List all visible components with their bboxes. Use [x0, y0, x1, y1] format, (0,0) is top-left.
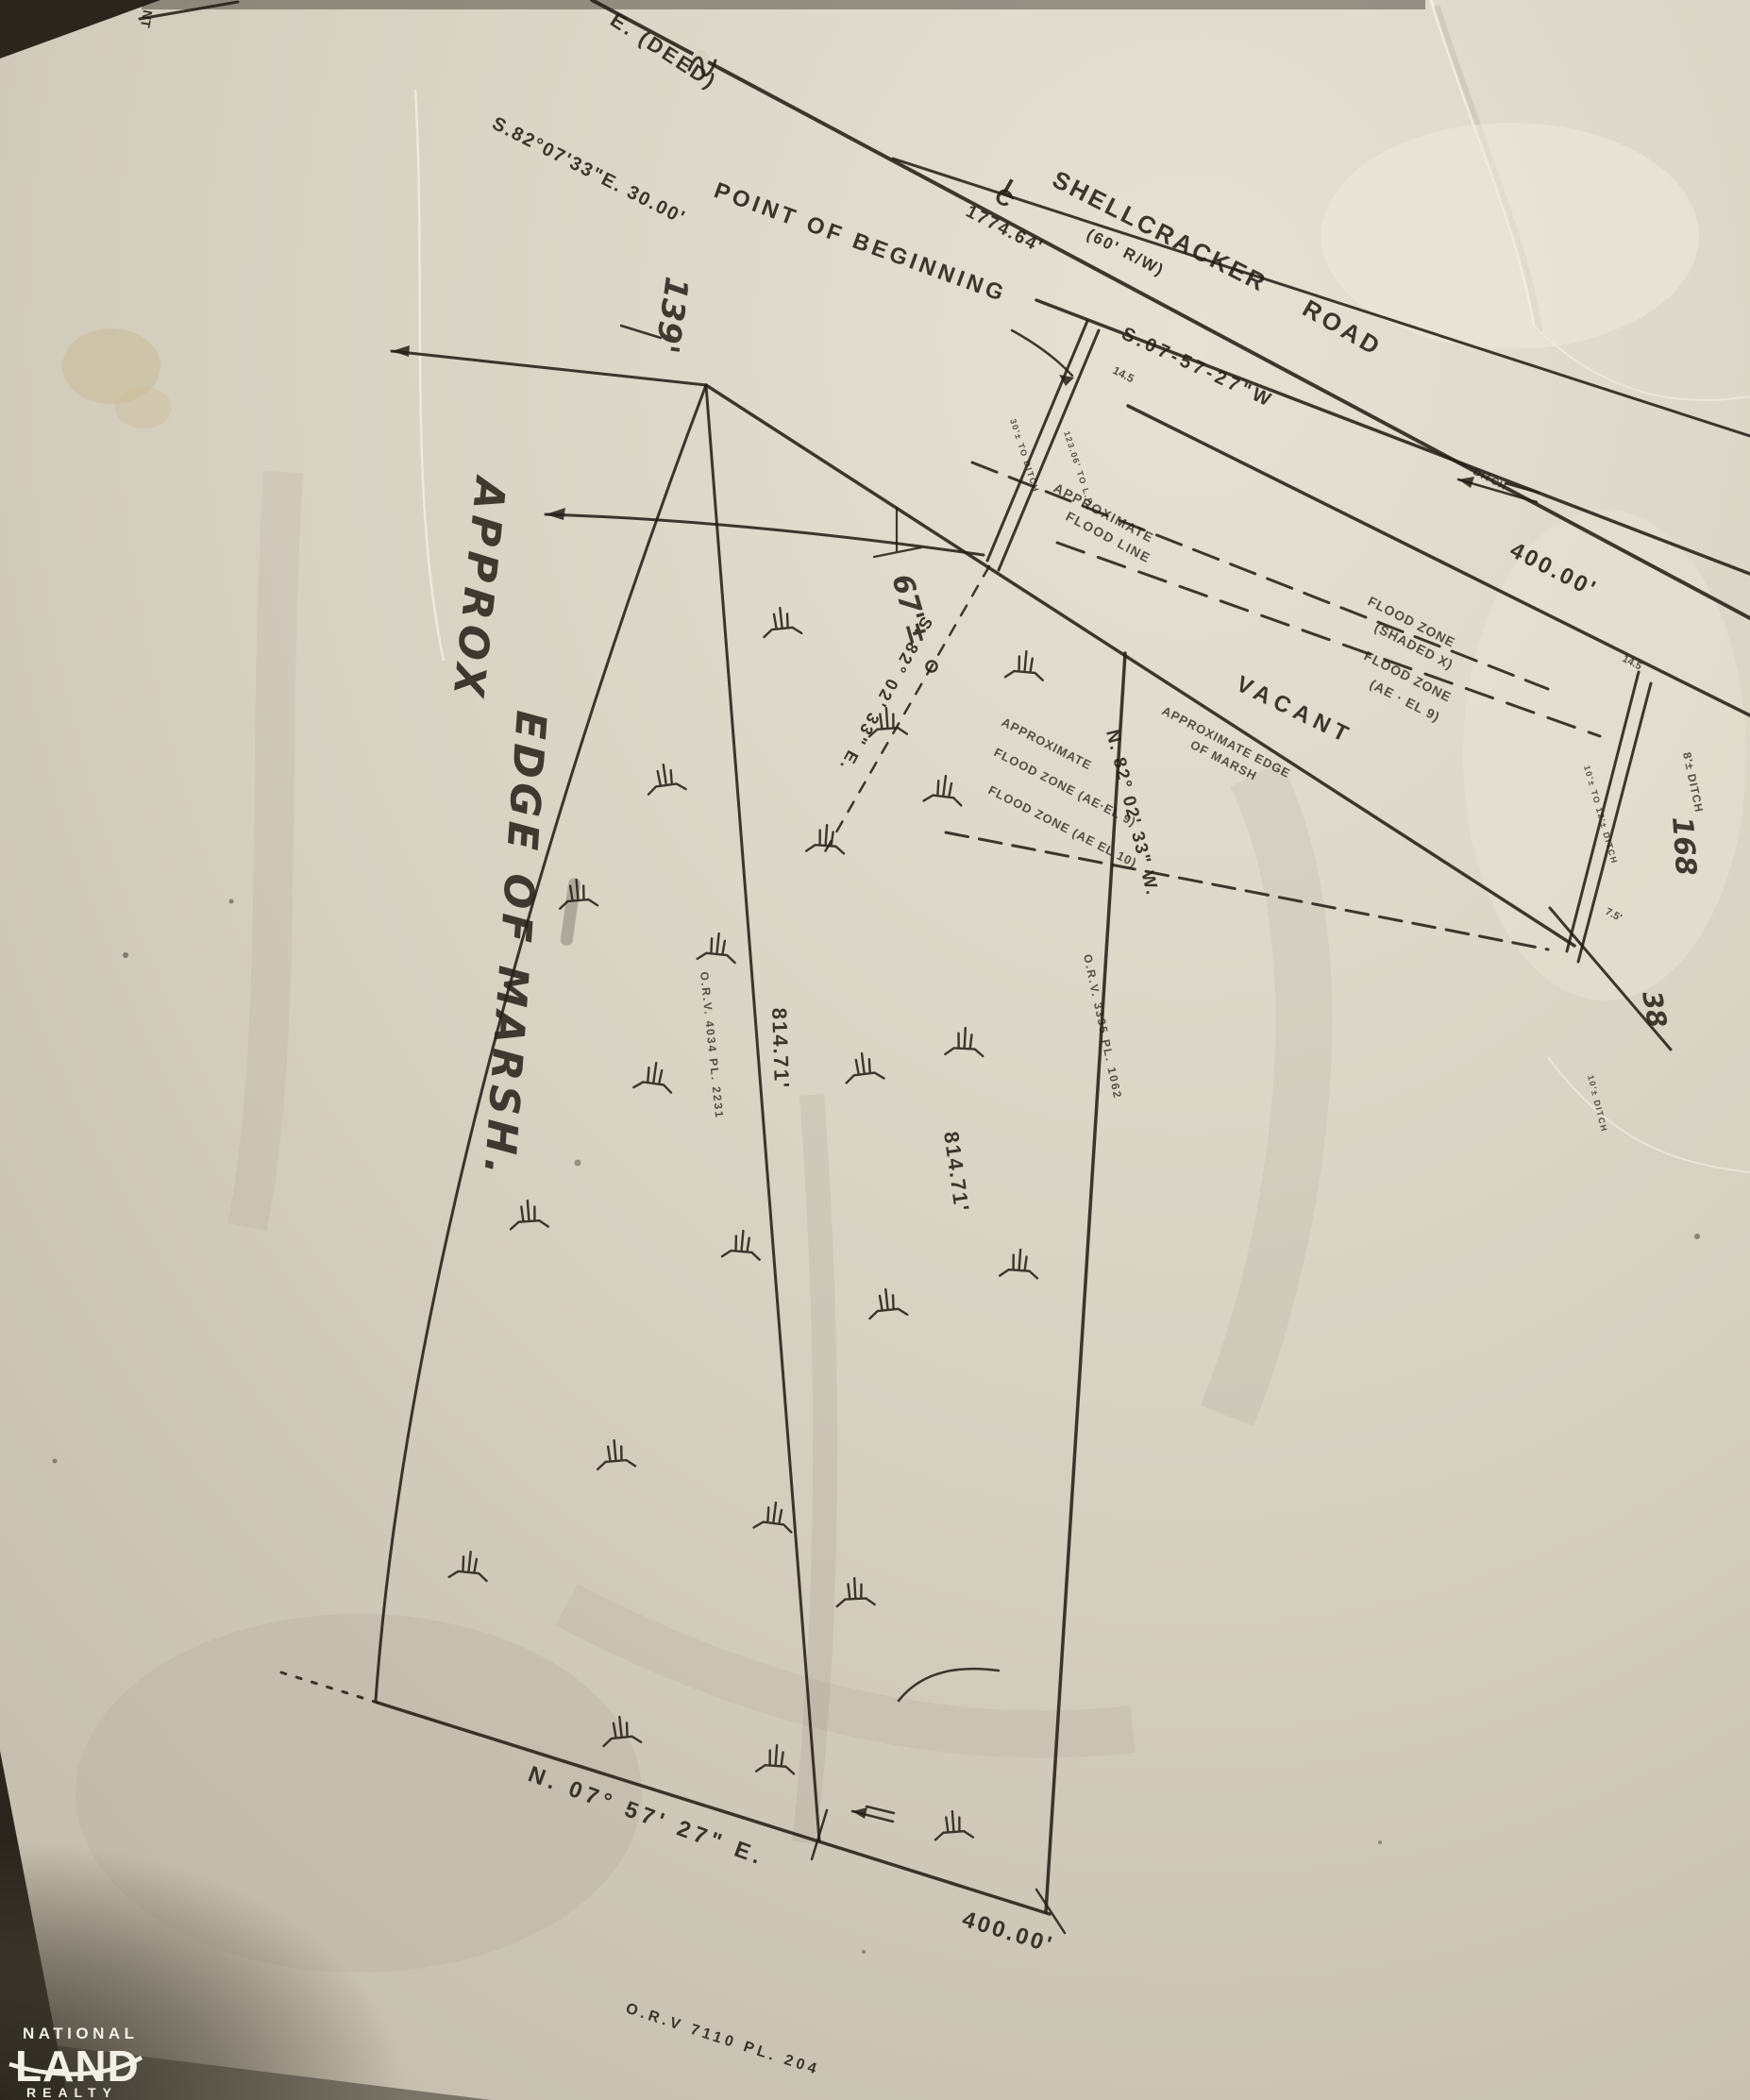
- logo-line-realty: REALTY: [26, 2085, 118, 2100]
- survey-plat-drawing: NT E. (DEED) S.82°07'33"E. 30.00' C L SH…: [0, 0, 1750, 2100]
- hand-dim-168: 168: [1665, 815, 1702, 877]
- hand-dim-38: 38: [1636, 988, 1673, 1030]
- logo-line-national: NATIONAL: [23, 2024, 139, 2042]
- scanned-survey-photo: NT E. (DEED) S.82°07'33"E. 30.00' C L SH…: [0, 0, 1750, 2100]
- west-distance: 814.71': [767, 1007, 794, 1089]
- national-land-realty-logo: NATIONAL LAND REALTY: [9, 2024, 142, 2100]
- cut-text-fragment: NT: [138, 8, 156, 29]
